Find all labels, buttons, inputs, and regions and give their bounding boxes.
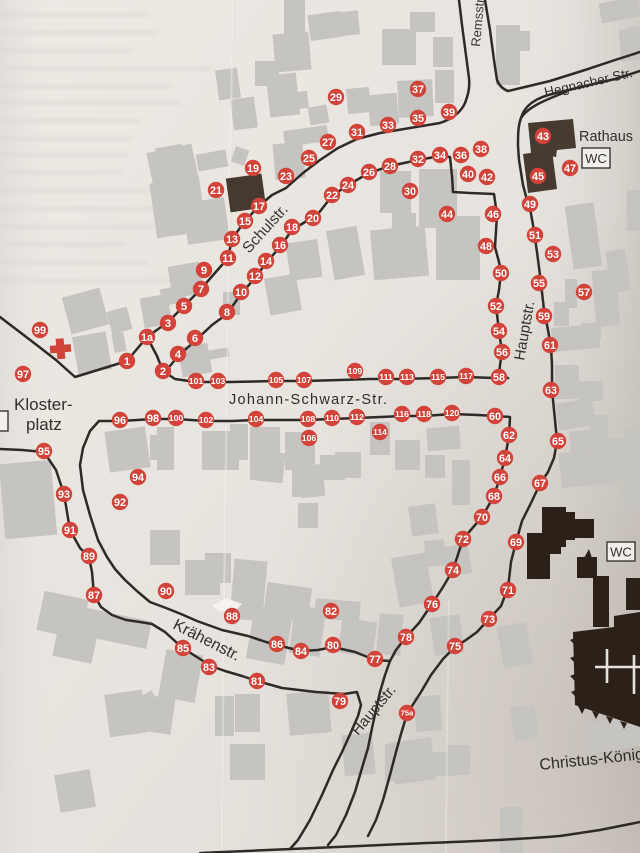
svg-text:117: 117	[459, 371, 473, 381]
svg-text:40: 40	[462, 169, 474, 181]
svg-text:37: 37	[412, 84, 424, 96]
svg-text:16: 16	[274, 240, 286, 252]
svg-text:58: 58	[493, 372, 505, 384]
svg-text:42: 42	[481, 172, 493, 184]
svg-text:100: 100	[169, 413, 184, 423]
svg-text:120: 120	[445, 408, 460, 418]
svg-text:35: 35	[412, 113, 424, 125]
svg-text:Johann-Schwarz-Str.: Johann-Schwarz-Str.	[229, 392, 388, 408]
svg-text:52: 52	[490, 301, 502, 313]
svg-text:Kloster-: Kloster-	[14, 395, 73, 414]
svg-text:106: 106	[302, 433, 317, 443]
svg-text:1a: 1a	[141, 332, 154, 344]
svg-text:91: 91	[64, 525, 76, 537]
svg-text:75: 75	[449, 641, 461, 653]
svg-text:62: 62	[503, 430, 515, 442]
svg-text:76: 76	[426, 599, 438, 611]
svg-text:104: 104	[249, 414, 264, 424]
svg-text:10: 10	[235, 287, 247, 299]
svg-text:67: 67	[534, 478, 546, 490]
svg-text:94: 94	[132, 472, 144, 484]
svg-text:55: 55	[533, 278, 545, 290]
svg-text:48: 48	[480, 241, 492, 253]
svg-text:27: 27	[322, 137, 334, 149]
svg-text:77: 77	[369, 654, 381, 666]
svg-text:96: 96	[114, 415, 126, 427]
svg-text:95: 95	[38, 446, 50, 458]
svg-text:84: 84	[295, 646, 307, 658]
svg-text:115: 115	[431, 372, 445, 382]
svg-text:46: 46	[487, 209, 499, 221]
svg-text:72: 72	[457, 534, 469, 546]
svg-text:108: 108	[301, 414, 316, 424]
svg-text:74: 74	[447, 565, 459, 577]
svg-text:87: 87	[88, 590, 100, 602]
svg-text:88: 88	[226, 611, 238, 623]
svg-text:71: 71	[502, 585, 514, 597]
svg-text:78: 78	[400, 632, 412, 644]
svg-text:102: 102	[199, 415, 214, 425]
svg-text:24: 24	[342, 180, 354, 192]
svg-text:80: 80	[327, 640, 339, 652]
svg-text:101: 101	[189, 376, 204, 386]
svg-text:68: 68	[488, 491, 500, 503]
svg-text:61: 61	[544, 340, 556, 352]
svg-text:17: 17	[253, 201, 265, 213]
svg-text:60: 60	[489, 411, 501, 423]
svg-text:50: 50	[495, 268, 507, 280]
svg-text:14: 14	[260, 256, 272, 268]
svg-text:59: 59	[538, 311, 550, 323]
svg-text:99: 99	[34, 325, 46, 337]
svg-text:92: 92	[114, 497, 126, 509]
svg-text:WC: WC	[585, 151, 607, 166]
svg-text:83: 83	[203, 662, 215, 674]
svg-text:22: 22	[326, 190, 338, 202]
svg-text:79: 79	[334, 696, 346, 708]
svg-text:38: 38	[475, 144, 487, 156]
svg-text:51: 51	[529, 230, 541, 242]
svg-text:89: 89	[83, 551, 95, 563]
svg-text:73: 73	[483, 614, 495, 626]
svg-text:Rathaus: Rathaus	[579, 129, 633, 145]
svg-text:97: 97	[17, 369, 29, 381]
svg-text:69: 69	[510, 537, 522, 549]
svg-text:66: 66	[494, 472, 506, 484]
svg-text:54: 54	[493, 326, 505, 338]
svg-text:23: 23	[280, 171, 292, 183]
svg-text:105: 105	[269, 375, 284, 385]
svg-text:90: 90	[160, 586, 172, 598]
svg-text:64: 64	[499, 453, 511, 465]
svg-text:103: 103	[211, 376, 226, 386]
svg-text:9: 9	[201, 265, 207, 277]
svg-text:70: 70	[476, 512, 488, 524]
svg-text:WC: WC	[610, 545, 632, 560]
svg-text:11: 11	[222, 253, 233, 265]
svg-text:65: 65	[552, 436, 564, 448]
svg-text:86: 86	[271, 639, 283, 651]
svg-text:28: 28	[384, 161, 396, 173]
svg-text:26: 26	[363, 167, 375, 179]
svg-text:2: 2	[160, 366, 166, 378]
svg-text:49: 49	[524, 199, 536, 211]
svg-text:4: 4	[175, 349, 182, 361]
svg-text:18: 18	[286, 222, 298, 234]
svg-text:12: 12	[249, 271, 261, 283]
svg-text:31: 31	[351, 127, 363, 139]
svg-text:30: 30	[404, 186, 416, 198]
svg-text:8: 8	[224, 307, 230, 319]
svg-text:98: 98	[147, 413, 159, 425]
svg-text:45: 45	[532, 171, 544, 183]
svg-text:85: 85	[177, 643, 189, 655]
svg-text:29: 29	[330, 92, 342, 104]
svg-text:20: 20	[307, 213, 319, 225]
svg-text:39: 39	[443, 107, 455, 119]
svg-text:109: 109	[348, 366, 363, 376]
svg-text:57: 57	[578, 287, 590, 299]
svg-text:21: 21	[210, 185, 222, 197]
svg-text:43: 43	[537, 131, 549, 143]
svg-text:114: 114	[373, 427, 387, 437]
svg-text:118: 118	[417, 409, 431, 419]
svg-text:7: 7	[198, 284, 204, 296]
svg-text:19: 19	[247, 163, 259, 175]
svg-text:3: 3	[165, 318, 171, 330]
svg-text:platz: platz	[26, 415, 62, 434]
svg-text:25: 25	[303, 153, 315, 165]
svg-text:81: 81	[251, 676, 263, 688]
svg-text:111: 111	[379, 372, 393, 382]
svg-text:75a: 75a	[401, 709, 414, 718]
svg-text:110: 110	[325, 413, 339, 423]
svg-text:32: 32	[412, 154, 424, 166]
svg-text:113: 113	[400, 372, 414, 382]
svg-text:36: 36	[455, 150, 467, 162]
svg-text:6: 6	[192, 333, 198, 345]
svg-text:116: 116	[395, 409, 409, 419]
svg-text:33: 33	[382, 120, 394, 132]
svg-text:93: 93	[58, 489, 70, 501]
svg-text:53: 53	[547, 249, 559, 261]
svg-text:1: 1	[124, 356, 130, 368]
svg-text:107: 107	[297, 375, 312, 385]
svg-text:47: 47	[564, 163, 576, 175]
svg-text:34: 34	[434, 150, 446, 162]
svg-text:82: 82	[325, 606, 337, 618]
svg-text:13: 13	[226, 234, 238, 246]
svg-text:63: 63	[545, 385, 557, 397]
svg-text:15: 15	[239, 216, 251, 228]
svg-text:112: 112	[350, 412, 364, 422]
svg-text:5: 5	[181, 301, 187, 313]
svg-text:44: 44	[441, 209, 453, 221]
svg-text:56: 56	[496, 347, 508, 359]
